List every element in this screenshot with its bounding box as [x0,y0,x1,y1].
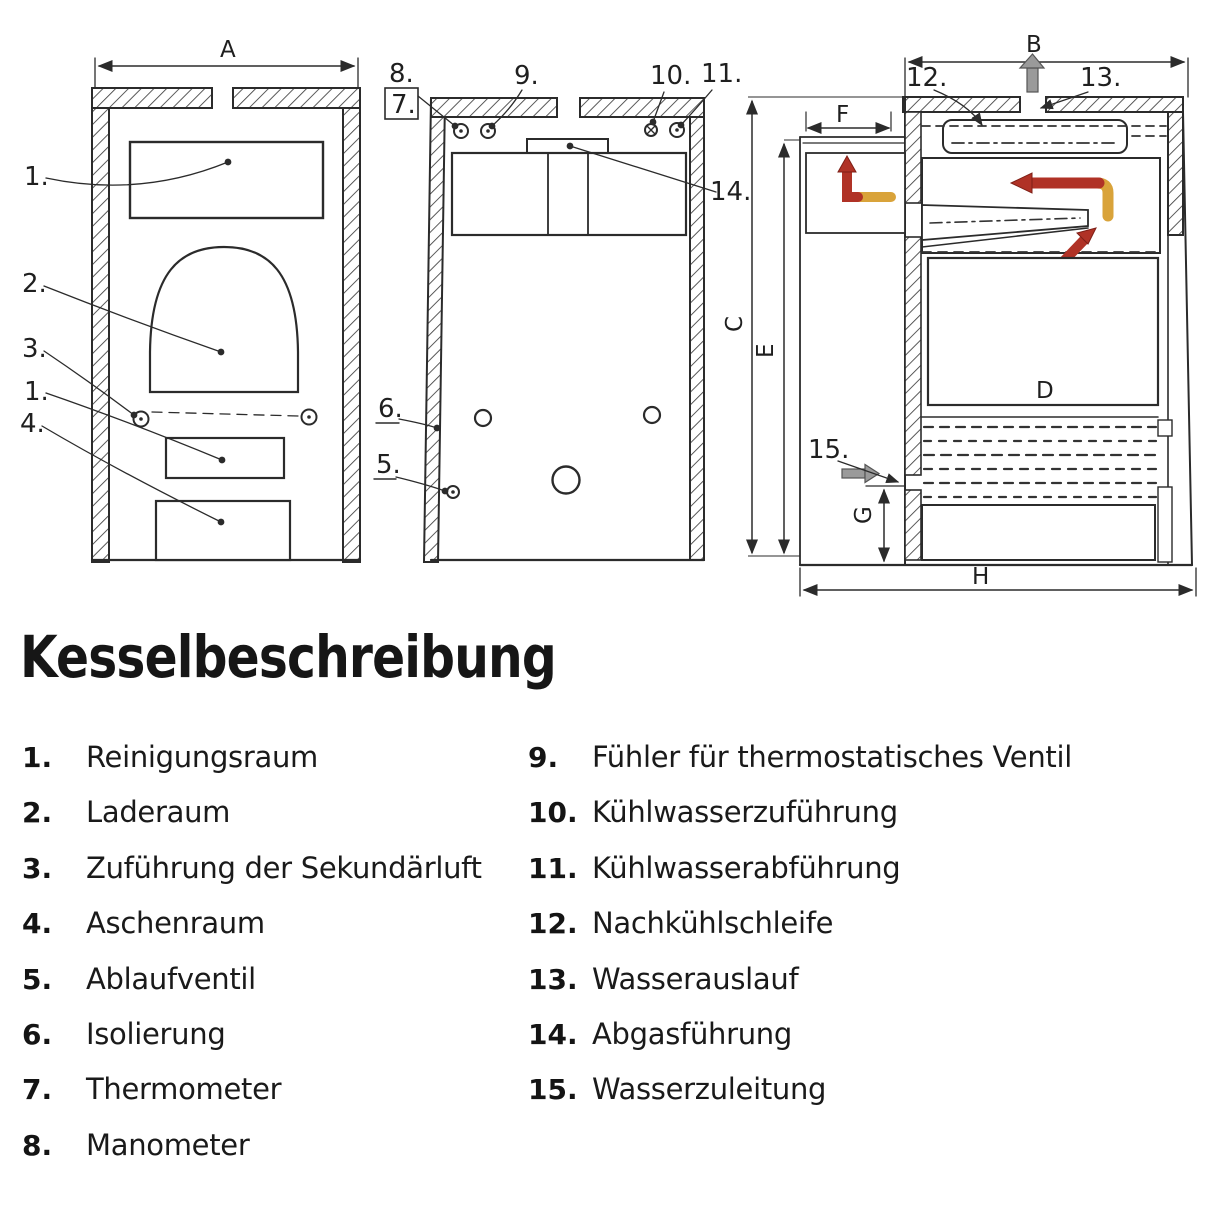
technical-drawing: A 1. 2. 3. 1. 4. [0,0,1214,614]
legend-number: 1. [22,741,86,774]
dim-label-g: G [851,506,877,524]
callout-1-mid: 1. [24,377,49,407]
legend-item: 2.Laderaum [22,795,482,825]
callout-3: 3. [22,334,47,364]
legend-item: 4.Aschenraum [22,906,482,936]
ash-chamber-side [922,505,1155,560]
legend-number: 13. [528,963,592,996]
legend-number: 12. [528,907,592,940]
legend-label: Abgasführung [592,1017,792,1051]
dim-label-h: H [972,564,989,590]
legend-label: Wasserauslauf [592,962,798,996]
legend-number: 3. [22,852,86,885]
legend-number: 9. [528,741,592,774]
callout-8: 8. [389,59,414,89]
legend-item: 1.Reinigungsraum [22,740,482,770]
legend-label: Isolierung [86,1017,225,1051]
legend-label: Reinigungsraum [86,740,318,774]
legend-number: 14. [528,1018,592,1051]
flue-stub [527,139,608,153]
dim-label-e: E [753,343,779,358]
legend-label: Laderaum [86,795,230,829]
callout-5: 5. [376,450,401,480]
legend-item: 6.Isolierung [22,1017,482,1047]
legend-item: 5.Ablaufventil [22,962,482,992]
legend-item: 14.Abgasführung [528,1017,1072,1047]
legend-number: 15. [528,1073,592,1106]
door-hinge-lower [1158,487,1172,562]
grate-insulation [924,427,1156,497]
side-left-wall-lower [905,490,921,560]
front-top-band-left [92,88,212,108]
front-top-band-right [233,88,360,108]
callout-10: 10. [650,61,691,91]
callout-9: 9. [514,61,539,91]
legend-label: Ablaufventil [86,962,256,996]
after-cooling-loop [943,120,1127,153]
loading-chamber-arch [150,247,298,392]
callout-2: 2. [22,269,47,299]
side-left-wall-mid [905,237,921,475]
legend-item: 12.Nachkühlschleife [528,906,1072,936]
legend-number: 10. [528,796,592,829]
legend-column-left: 1.Reinigungsraum 2.Laderaum 3.Zuführung … [22,740,482,1183]
legend-column-right: 9.Fühler für thermostatisches Ventil 10.… [528,740,1072,1128]
water-outlet-arrow [1020,54,1044,92]
legend-number: 7. [22,1073,86,1106]
legend-label: Thermometer [86,1072,281,1106]
rear-right-wall [690,98,704,560]
rear-port-right [644,407,660,423]
legend-item: 11.Kühlwasserabführung [528,851,1072,881]
legend-label: Kühlwasserzuführung [592,795,898,829]
callout-12: 12. [906,63,947,93]
side-left-wall-upper [905,112,921,203]
rear-left-wall [424,98,445,562]
callout-7: 7. [391,90,416,120]
legend-item: 3.Zuführung der Sekundärluft [22,851,482,881]
rear-port-center [553,467,580,494]
dim-label-f: F [836,102,849,128]
legend-number: 4. [22,907,86,940]
page-title: Kesselbeschreibung [20,626,556,690]
legend-number: 2. [22,796,86,829]
rear-view: 8. 7. 9. 10. 11. 14. 6. 5. [374,59,751,562]
legend-number: 8. [22,1129,86,1162]
front-left-wall [92,88,109,562]
callout-13: 13. [1080,63,1121,93]
dim-label-a: A [220,37,236,63]
rear-top-band-left [431,98,557,117]
rear-top-band-right [580,98,704,117]
boiler-datasheet-page: A 1. 2. 3. 1. 4. [0,0,1214,1214]
legend-number: 6. [22,1018,86,1051]
legend-label: Manometer [86,1128,249,1162]
dim-label-d: D [1036,378,1054,404]
legend-item: 15.Wasserzuleitung [528,1072,1072,1102]
door-hinge-upper [1158,420,1172,436]
callout-4: 4. [20,409,45,439]
legend-label: Aschenraum [86,906,265,940]
side-right-wall [1168,112,1183,235]
heat-exchanger [452,153,686,235]
cleaning-chamber [130,142,323,218]
front-view: A 1. 2. 3. 1. 4. [20,37,360,562]
ash-chamber-front [156,501,290,560]
legend-item: 7.Thermometer [22,1072,482,1102]
legend-label: Kühlwasserabführung [592,851,900,885]
callout-1-top: 1. [24,162,49,192]
legend-number: 5. [22,963,86,996]
legend-item: 9.Fühler für thermostatisches Ventil [528,740,1072,770]
legend-item: 13.Wasserauslauf [528,962,1072,992]
callout-15: 15. [808,435,849,465]
callout-11: 11. [701,59,742,89]
legend-number: 11. [528,852,592,885]
legend-item: 10.Kühlwasserzuführung [528,795,1072,825]
dim-label-c: C [722,316,748,332]
side-view: B F [800,32,1196,596]
legend-item: 8.Manometer [22,1128,482,1158]
legend-label: Nachkühlschleife [592,906,833,940]
dim-label-b: B [1026,32,1042,58]
rear-port-left [475,410,491,426]
legend-label: Zuführung der Sekundärluft [86,851,482,885]
legend-label: Fühler für thermostatisches Ventil [592,740,1072,774]
front-right-wall [343,88,360,562]
legend-label: Wasserzuleitung [592,1072,826,1106]
